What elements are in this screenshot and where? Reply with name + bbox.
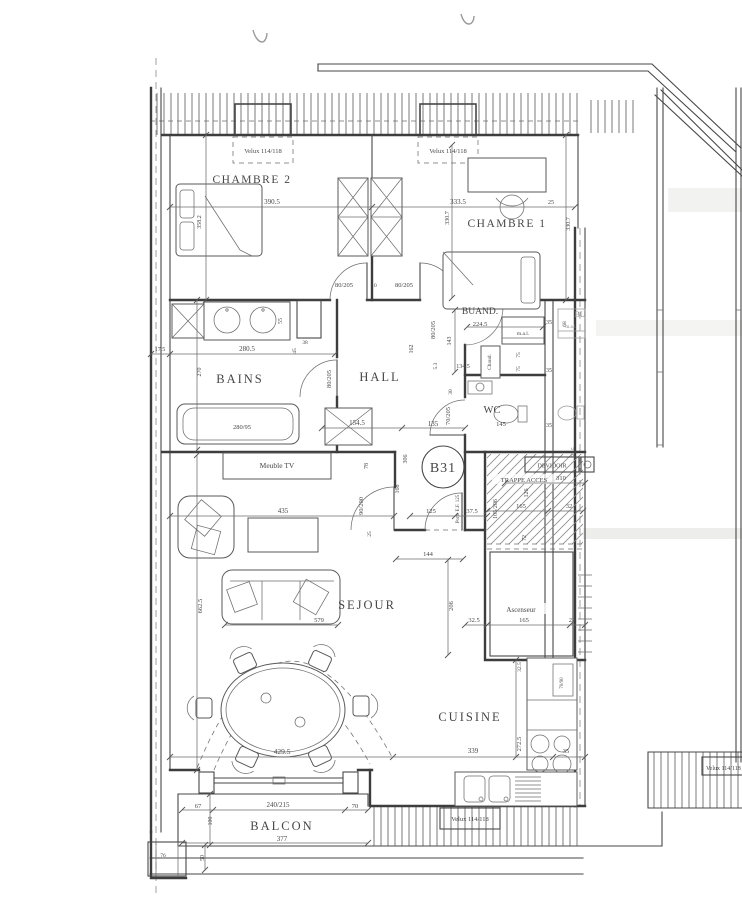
dim: 76 (160, 853, 166, 859)
dim: 37.5 (571, 447, 577, 457)
dim: 5.3 (433, 362, 439, 369)
dim: 80/205 (430, 321, 437, 339)
dim: 10 (371, 283, 377, 289)
trappe-acces-label: TRAPPE ACCES (501, 477, 548, 484)
room-label-buand: BUAND. (462, 307, 498, 317)
bed-chambre1 (443, 252, 540, 309)
dim: 145 (496, 421, 506, 428)
floor-plan-canvas: CHAMBRE 2 CHAMBRE 1 BAINS HALL BUAND. WC… (0, 0, 742, 900)
dim: 32.5 (517, 662, 523, 672)
dim: 35 (546, 320, 552, 326)
sofa (222, 570, 340, 624)
room-label-balcon: BALCON (250, 819, 313, 833)
entry-door-label: Porte E.F. 125 (456, 494, 461, 523)
duct-pier (297, 300, 321, 338)
dim: 144 (423, 551, 434, 558)
dim: 429.5 (274, 747, 291, 756)
dim: 330.7 (566, 217, 572, 231)
dim: 35 (563, 748, 570, 755)
dim: 78 (364, 463, 370, 469)
dim: 30 (448, 389, 454, 395)
dim: 38 (302, 340, 308, 346)
dim: 162 (409, 345, 415, 354)
dim: 70 (352, 803, 359, 810)
trappe-acces-zone (487, 454, 583, 544)
dim: 80/205 (335, 282, 353, 289)
room-label-cuisine: CUISINE (438, 710, 501, 724)
dim: 377 (277, 835, 288, 843)
room-label-wc: WC (484, 405, 501, 416)
dim: 280/95 (233, 424, 251, 431)
dim: 80/205 (395, 282, 413, 289)
dim: 435 (278, 507, 289, 515)
velux-label: Velux 114/118 (451, 816, 489, 823)
dim: 70/90 (560, 677, 565, 689)
desk-chambre1 (468, 158, 546, 219)
scanned-floor-plan: CHAMBRE 2 CHAMBRE 1 BAINS HALL BUAND. WC… (0, 0, 742, 900)
velux-label: Velux 114/118 (244, 148, 282, 155)
dim: 306 (403, 455, 409, 464)
bed-chambre2 (176, 184, 262, 256)
dim: 67 (195, 803, 202, 810)
dim: 143 (447, 337, 453, 346)
dim: 32.5 (468, 617, 479, 624)
room-label-bains: BAINS (216, 372, 264, 386)
armchair (178, 496, 234, 558)
dim: 125 (426, 508, 436, 515)
room-label-sejour: SEJOUR (338, 598, 396, 612)
dim: 168 (395, 485, 401, 494)
bathroom-vanity (172, 302, 290, 340)
dim: 32 (566, 503, 573, 510)
dim: 25 (548, 200, 554, 206)
dim: 165 (519, 617, 529, 624)
velux-label: Velux 114/118 (706, 766, 741, 772)
dim: 25 (367, 531, 373, 537)
dim: 224.5 (473, 321, 488, 328)
roof-hatch-top (150, 93, 580, 135)
room-label-chambre1: CHAMBRE 1 (468, 218, 547, 230)
devidoir-label: DEVIDOIR (538, 464, 567, 470)
neighbor-room-label: BU (574, 310, 585, 319)
dim: 310 (556, 475, 566, 482)
dim: 45 (292, 348, 298, 354)
door-post (343, 772, 358, 793)
dim: 126 (524, 489, 530, 498)
door-post (199, 772, 214, 793)
wardrobe (338, 178, 402, 256)
dim: 579 (314, 617, 324, 624)
dim: 68 (562, 321, 568, 327)
technical-shaft (487, 454, 594, 656)
staple-mark-icon (461, 14, 474, 24)
dim: 240/215 (267, 801, 290, 809)
dim: 90/200 (358, 497, 365, 515)
coffee-table (248, 518, 318, 552)
dim: 272.5 (516, 737, 523, 752)
dim: 206 (448, 600, 455, 611)
dim: 662.5 (197, 599, 204, 614)
dim: 100 (208, 817, 214, 826)
dim: 105/206 (493, 499, 499, 519)
wc-sink (468, 381, 492, 394)
dim: 339 (468, 747, 479, 755)
dim: 55 (278, 318, 284, 324)
dim: 330.7 (445, 211, 451, 225)
dim: 390.5 (264, 198, 280, 206)
dim: 35 (546, 423, 552, 429)
dim: 37.5 (466, 508, 477, 515)
roof-hatch-bottom (372, 806, 583, 846)
dim: 17.5 (155, 347, 166, 353)
unit-badge-label: B31 (430, 461, 456, 476)
dim: 270 (197, 368, 203, 377)
dim: 70/205 (445, 407, 452, 425)
staple-mark-icon (253, 30, 267, 42)
tv-cabinet-label: Meuble TV (260, 461, 295, 470)
dim: 72 (522, 535, 528, 541)
velux-label: Velux 114/118 (429, 148, 467, 155)
dim: 75 (516, 366, 522, 372)
dim: 50 (200, 855, 206, 861)
dim: 75 (516, 352, 522, 358)
dim: 358.2 (197, 215, 203, 229)
dim: 165 (516, 503, 526, 510)
ascenseur-label: Ascenseur (506, 606, 536, 614)
dim: 134.5 (456, 364, 470, 370)
dim: 280.5 (239, 345, 255, 353)
dim: 333.5 (450, 198, 466, 206)
boiler-label: Chaud. (487, 354, 493, 370)
washing-machine-label: m.a.l. (517, 331, 530, 337)
room-label-hall: HALL (359, 370, 400, 384)
dim: 22 (569, 617, 576, 624)
dim: 35 (546, 368, 552, 374)
dim: 80/205 (326, 370, 333, 388)
dim: 154.5 (349, 419, 365, 427)
room-label-chambre2: CHAMBRE 2 (213, 174, 292, 186)
dim: 135 (428, 420, 439, 428)
stairs (648, 752, 742, 808)
